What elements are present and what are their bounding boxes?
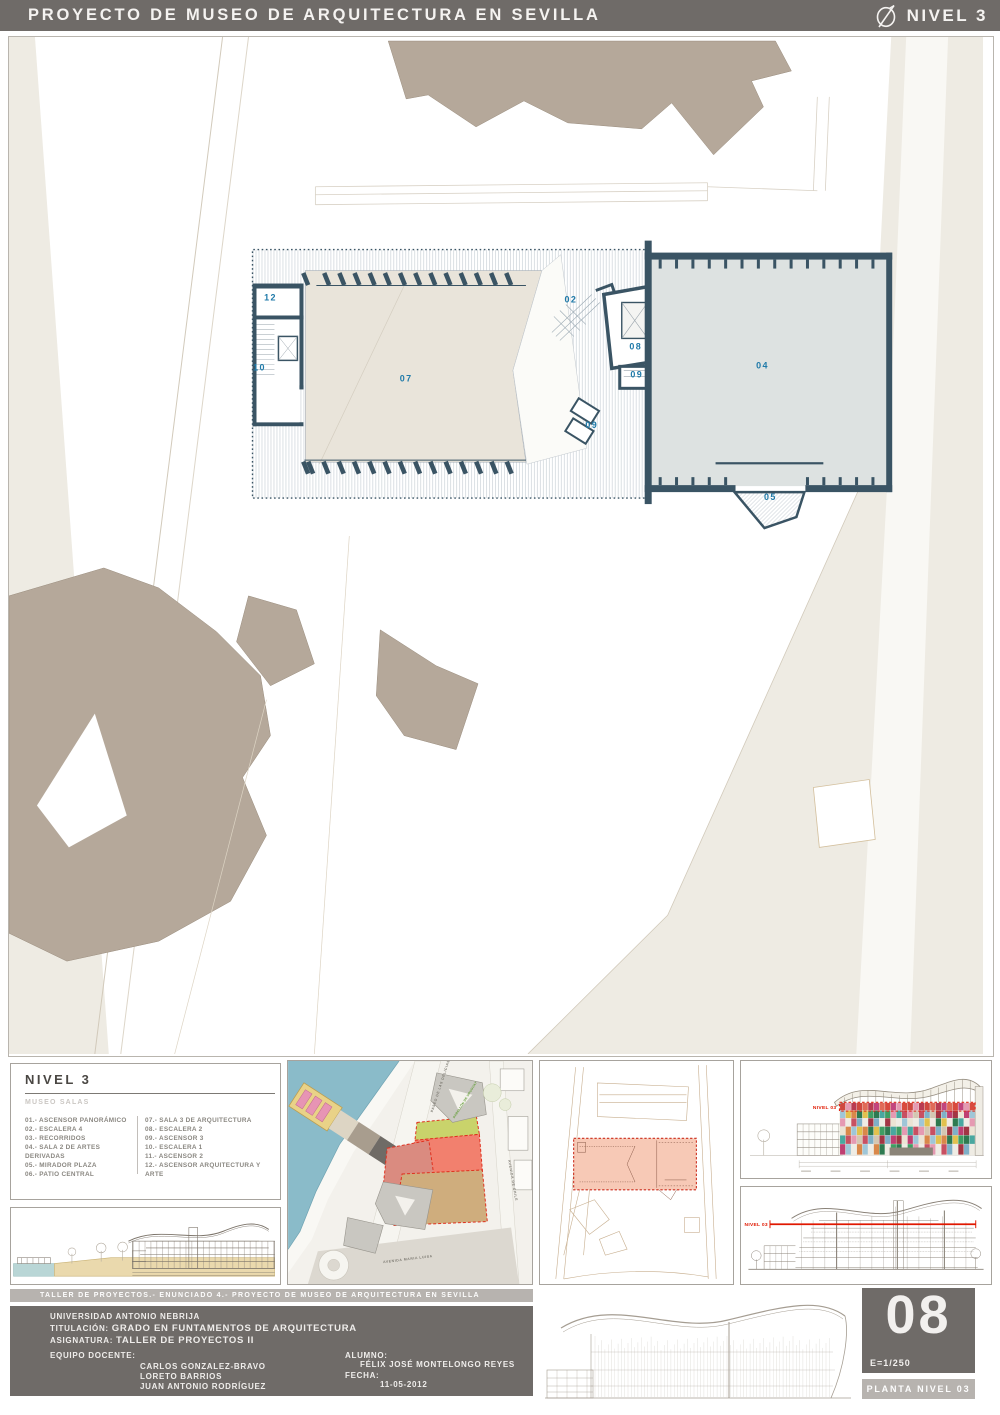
faculty-label: EQUIPO DOCENTE: <box>50 1351 136 1360</box>
legend-column-right: 07.- SALA 3 DE ARQUITECTURA08.- ESCALERA… <box>145 1116 277 1179</box>
level-marker-label: NIVEL 03 <box>745 1222 768 1228</box>
room-label: 05 <box>764 492 777 502</box>
student-label: ALUMNO: <box>345 1351 388 1360</box>
room-label: 07 <box>400 373 413 383</box>
key-plan-panel <box>539 1060 734 1285</box>
location-map-panel: PASEO DE LAS DELICIAS AVENIDA MARIA LUIS… <box>287 1060 533 1285</box>
room-label: 12 <box>264 292 277 302</box>
room-label: 08 <box>629 341 642 351</box>
site-building-north <box>388 41 791 155</box>
legend-item: 07.- SALA 3 DE ARQUITECTURA <box>145 1116 277 1125</box>
sketch-texture <box>595 1336 829 1397</box>
site-section-panel <box>10 1207 281 1285</box>
legend-item: 06.- PATIO CENTRAL <box>25 1170 137 1179</box>
annex-elevation <box>797 1124 842 1155</box>
legend-rule <box>25 1093 275 1094</box>
room-label: 02 <box>564 294 577 304</box>
sheet-name-bar: PLANTA NIVEL 03 <box>862 1379 975 1399</box>
floor-plan-drawing: 121007020809090405 <box>9 37 991 1054</box>
student-name: FÉLIX JOSÉ MONTELONGO REYES <box>360 1360 515 1369</box>
legend-item: 12.- ASCENSOR ARQUITECTURA Y ARTE <box>145 1161 277 1179</box>
date-label: FECHA: <box>345 1371 379 1380</box>
section-panel: NIVEL 03 <box>740 1186 992 1285</box>
legend-subtitle: MUSEO SALAS <box>25 1099 90 1106</box>
title-block: UNIVERSIDAD ANTONIO NEBRIJA TITULACIÓN: … <box>10 1306 535 1396</box>
elevation-panel: NIVEL 03 <box>740 1060 992 1179</box>
section-drawing: NIVEL 03 <box>741 1187 991 1284</box>
building-sketch <box>533 1288 864 1410</box>
legend-item: 05.- MIRADOR PLAZA <box>25 1161 137 1170</box>
sheet-scale: E=1/250 <box>870 1358 911 1368</box>
degree-label: TITULACIÓN: <box>50 1324 109 1333</box>
room-07-sala-arquitectura <box>305 271 542 463</box>
sheet-number: 08 <box>862 1284 975 1346</box>
elevation-drawing: NIVEL 03 <box>741 1061 991 1178</box>
building-section-lines <box>128 1224 274 1275</box>
subject-value: TALLER DE PROYECTOS II <box>116 1335 254 1346</box>
legend-title: NIVEL 3 <box>25 1072 91 1087</box>
degree-value: GRADO EN FUNTAMENTOS DE ARQUITECTURA <box>112 1323 357 1334</box>
location-map: PASEO DE LAS DELICIAS AVENIDA MARIA LUIS… <box>288 1061 532 1284</box>
key-plan <box>540 1061 733 1284</box>
room-label: 09 <box>630 369 643 379</box>
sketch-drawing <box>533 1288 864 1410</box>
floor-plan: 121007020809090405 <box>253 241 893 528</box>
legend-item: 10.- ESCALERA 1 <box>145 1143 277 1152</box>
faculty-member: LORETO BARRIOS <box>140 1372 222 1381</box>
faculty-member: CARLOS GONZALEZ-BRAVO <box>140 1362 266 1371</box>
room-label: 04 <box>756 360 769 370</box>
legend-item: 09.- ASCENSOR 3 <box>145 1134 277 1143</box>
legend-item: 04.- SALA 2 DE ARTES DERIVADAS <box>25 1143 137 1161</box>
site-building-west <box>9 568 270 961</box>
legend-divider <box>137 1116 138 1174</box>
header-bar: PROYECTO DE MUSEO DE ARQUITECTURA EN SEV… <box>0 0 1000 31</box>
legend-item: 01.- ASCENSOR PANORÁMICO <box>25 1116 137 1125</box>
main-drawing-area: 121007020809090405 <box>8 36 994 1057</box>
hall-04 <box>645 241 892 504</box>
north-arrow-icon <box>873 4 899 28</box>
legend-item: 11.- ASCENSOR 2 <box>145 1152 277 1161</box>
level-marker-label: NIVEL 03 <box>813 1105 837 1111</box>
legend-panel: NIVEL 3 MUSEO SALAS 01.- ASCENSOR PANORÁ… <box>10 1063 281 1200</box>
room-label: 10 <box>253 362 266 372</box>
subject-label: ASIGNATURA: <box>50 1336 113 1345</box>
legend-item: 03.- RECORRIDOS <box>25 1134 137 1143</box>
sheet-number-box: 08 E=1/250 <box>862 1288 975 1373</box>
room-label: 09 <box>585 420 598 430</box>
date-value: 11-05-2012 <box>380 1380 427 1389</box>
site-context <box>9 37 983 1054</box>
site-section-drawing <box>11 1208 280 1284</box>
faculty-member: JUAN ANTONIO RODRÍGUEZ <box>140 1382 266 1391</box>
legend-column-left: 01.- ASCENSOR PANORÁMICO02.- ESCALERA 40… <box>25 1116 137 1179</box>
footer-strip: TALLER DE PROYECTOS.- ENUNCIADO 4.- PROY… <box>10 1289 535 1302</box>
legend-item: 02.- ESCALERA 4 <box>25 1125 137 1134</box>
university-name: UNIVERSIDAD ANTONIO NEBRIJA <box>50 1312 200 1321</box>
sheet-title: PROYECTO DE MUSEO DE ARQUITECTURA EN SEV… <box>28 6 601 25</box>
level-badge: NIVEL 3 <box>907 6 988 26</box>
legend-item: 08.- ESCALERA 2 <box>145 1125 277 1134</box>
